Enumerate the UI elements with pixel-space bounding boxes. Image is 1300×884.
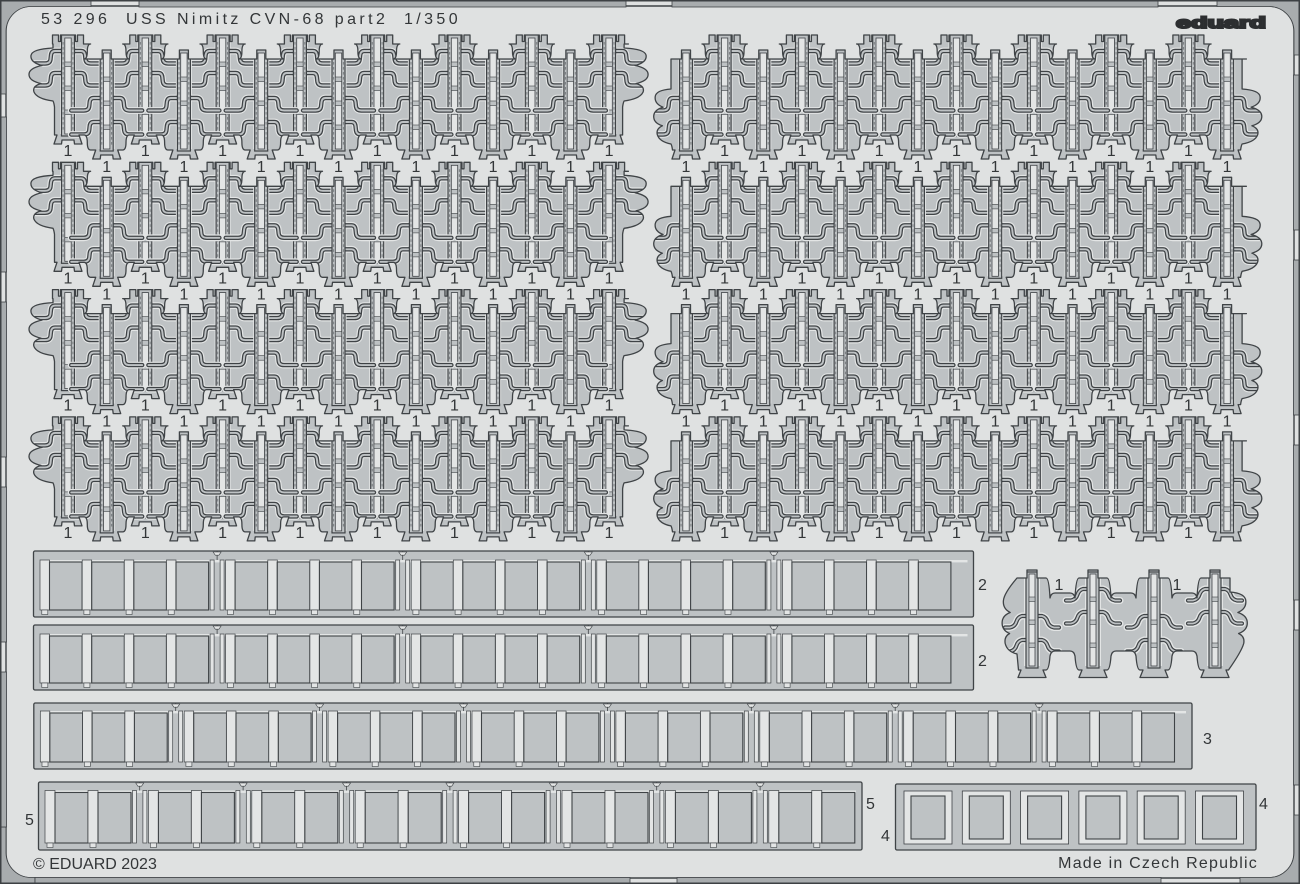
svg-text:1: 1 <box>218 398 227 415</box>
svg-text:4: 4 <box>1259 796 1268 813</box>
svg-text:1: 1 <box>913 286 922 303</box>
svg-text:1: 1 <box>64 525 73 542</box>
svg-text:1: 1 <box>373 270 382 287</box>
svg-text:1: 1 <box>257 159 266 176</box>
svg-text:1: 1 <box>373 398 382 415</box>
svg-text:1: 1 <box>1107 143 1116 160</box>
svg-text:1: 1 <box>527 398 536 415</box>
svg-text:1: 1 <box>1107 398 1116 415</box>
svg-text:1: 1 <box>334 286 343 303</box>
svg-text:1: 1 <box>875 143 884 160</box>
svg-text:1: 1 <box>797 525 806 542</box>
svg-text:1: 1 <box>682 414 691 431</box>
svg-text:1: 1 <box>1173 577 1182 594</box>
svg-text:1: 1 <box>605 525 614 542</box>
svg-text:1: 1 <box>720 398 729 415</box>
svg-text:1: 1 <box>836 159 845 176</box>
svg-text:1: 1 <box>759 286 768 303</box>
svg-text:1: 1 <box>257 286 266 303</box>
svg-text:1: 1 <box>797 398 806 415</box>
svg-text:1: 1 <box>1184 270 1193 287</box>
svg-text:1: 1 <box>1184 398 1193 415</box>
svg-text:1: 1 <box>373 143 382 160</box>
svg-text:1: 1 <box>179 414 188 431</box>
svg-text:1: 1 <box>797 270 806 287</box>
svg-text:5: 5 <box>866 796 875 813</box>
svg-text:1: 1 <box>102 414 111 431</box>
svg-text:2: 2 <box>978 653 987 670</box>
svg-text:1: 1 <box>991 159 1000 176</box>
svg-text:1: 1 <box>489 286 498 303</box>
svg-text:1: 1 <box>1145 159 1154 176</box>
svg-text:1: 1 <box>295 270 304 287</box>
svg-text:1: 1 <box>952 143 961 160</box>
svg-text:1: 1 <box>875 270 884 287</box>
svg-text:1: 1 <box>875 525 884 542</box>
svg-text:1: 1 <box>141 525 150 542</box>
svg-text:1: 1 <box>759 159 768 176</box>
svg-text:1: 1 <box>1029 525 1038 542</box>
svg-text:1: 1 <box>373 525 382 542</box>
svg-text:1: 1 <box>411 414 420 431</box>
svg-text:1: 1 <box>1068 414 1077 431</box>
svg-text:1: 1 <box>1068 159 1077 176</box>
svg-text:1: 1 <box>411 159 420 176</box>
svg-text:1: 1 <box>489 414 498 431</box>
svg-text:1: 1 <box>450 525 459 542</box>
svg-text:1: 1 <box>1029 270 1038 287</box>
svg-text:1: 1 <box>218 143 227 160</box>
svg-text:1: 1 <box>875 398 884 415</box>
svg-text:53 296 USS Nimitz CVN-68 part: 53 296 USS Nimitz CVN-68 part2 1/350 <box>41 11 461 28</box>
svg-text:1: 1 <box>1107 270 1116 287</box>
svg-text:1: 1 <box>295 143 304 160</box>
svg-text:1: 1 <box>566 159 575 176</box>
svg-text:1: 1 <box>527 525 536 542</box>
svg-text:1: 1 <box>527 143 536 160</box>
svg-text:2: 2 <box>978 577 987 594</box>
svg-text:1: 1 <box>1184 143 1193 160</box>
svg-text:1: 1 <box>1145 414 1154 431</box>
svg-text:1: 1 <box>1184 525 1193 542</box>
svg-text:1: 1 <box>566 286 575 303</box>
svg-text:1: 1 <box>913 159 922 176</box>
svg-text:1: 1 <box>179 286 188 303</box>
svg-text:1: 1 <box>1029 398 1038 415</box>
svg-text:1: 1 <box>759 414 768 431</box>
svg-text:1: 1 <box>682 286 691 303</box>
svg-text:1: 1 <box>991 414 1000 431</box>
svg-text:1: 1 <box>489 159 498 176</box>
svg-text:1: 1 <box>295 525 304 542</box>
svg-text:1: 1 <box>295 398 304 415</box>
svg-text:1: 1 <box>952 398 961 415</box>
svg-text:1: 1 <box>913 414 922 431</box>
svg-text:1: 1 <box>450 270 459 287</box>
svg-text:3: 3 <box>1203 731 1212 748</box>
svg-text:1: 1 <box>257 414 266 431</box>
svg-text:1: 1 <box>334 414 343 431</box>
svg-text:1: 1 <box>566 414 575 431</box>
svg-text:1: 1 <box>450 143 459 160</box>
svg-text:1: 1 <box>141 270 150 287</box>
svg-text:1: 1 <box>952 270 961 287</box>
svg-text:1: 1 <box>102 159 111 176</box>
svg-text:1: 1 <box>1145 286 1154 303</box>
svg-text:1: 1 <box>605 270 614 287</box>
svg-text:© EDUARD 2023: © EDUARD 2023 <box>33 856 157 873</box>
svg-text:1: 1 <box>836 414 845 431</box>
svg-text:1: 1 <box>141 398 150 415</box>
svg-text:1: 1 <box>218 525 227 542</box>
svg-text:4: 4 <box>881 828 890 845</box>
svg-text:1: 1 <box>1223 159 1232 176</box>
svg-text:1: 1 <box>1055 577 1064 594</box>
svg-text:1: 1 <box>1068 286 1077 303</box>
svg-text:1: 1 <box>1223 414 1232 431</box>
svg-text:1: 1 <box>605 398 614 415</box>
svg-text:1: 1 <box>682 159 691 176</box>
svg-text:1: 1 <box>836 286 845 303</box>
svg-text:1: 1 <box>991 286 1000 303</box>
svg-text:5: 5 <box>25 812 34 829</box>
svg-text:1: 1 <box>952 525 961 542</box>
svg-text:1: 1 <box>64 270 73 287</box>
svg-text:eduard: eduard <box>1176 15 1266 32</box>
svg-text:1: 1 <box>797 143 806 160</box>
svg-text:1: 1 <box>720 525 729 542</box>
svg-text:1: 1 <box>179 159 188 176</box>
svg-text:1: 1 <box>334 159 343 176</box>
svg-text:1: 1 <box>720 270 729 287</box>
svg-text:1: 1 <box>527 270 536 287</box>
svg-text:1: 1 <box>1223 286 1232 303</box>
svg-text:1: 1 <box>1029 143 1038 160</box>
svg-text:1: 1 <box>720 143 729 160</box>
svg-text:1: 1 <box>411 286 420 303</box>
svg-text:1: 1 <box>218 270 227 287</box>
svg-text:1: 1 <box>141 143 150 160</box>
svg-text:Made in Czech Republic: Made in Czech Republic <box>1058 855 1258 872</box>
svg-text:1: 1 <box>605 143 614 160</box>
svg-text:1: 1 <box>1107 525 1116 542</box>
svg-text:1: 1 <box>64 398 73 415</box>
svg-text:1: 1 <box>102 286 111 303</box>
svg-text:1: 1 <box>450 398 459 415</box>
svg-text:1: 1 <box>64 143 73 160</box>
